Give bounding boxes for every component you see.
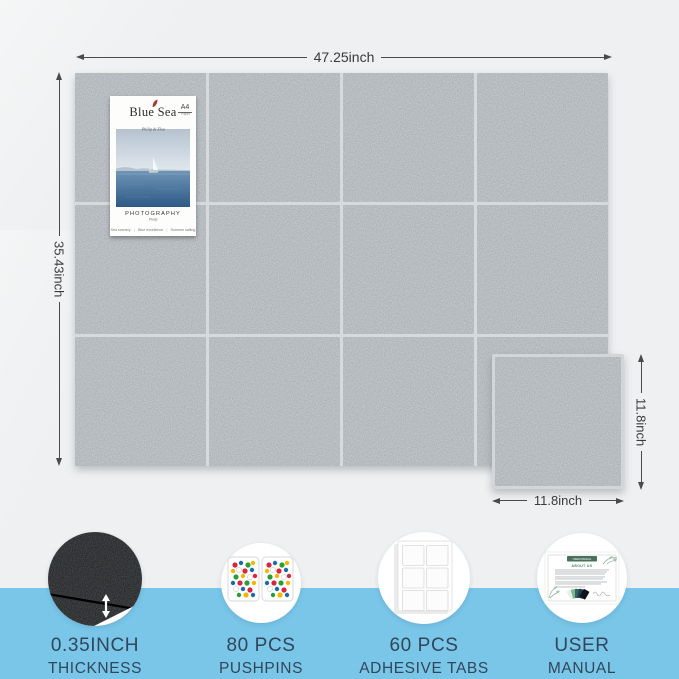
- feature-circle-pushpins: [221, 543, 301, 623]
- dimension-tile-width: 11.8inch: [492, 493, 624, 508]
- tile-width-label: 11.8inch: [534, 493, 582, 508]
- leaf-icon: [150, 99, 159, 108]
- feature-label-thickness: 0.35INCH THICKNESS: [15, 635, 175, 678]
- poster-caption: PHOTOGRAPHY: [119, 211, 188, 217]
- arrowhead-up-icon: [638, 354, 644, 362]
- poster-subtitle: Philip & Elsa: [141, 127, 164, 132]
- feature-circle-adhesive-tabs: [378, 532, 470, 624]
- dimension-board-height: 35.43inch: [50, 72, 68, 466]
- tile-height-label: 11.8inch: [634, 398, 649, 446]
- manual-pill-label: USER MANUAL: [573, 557, 592, 561]
- user-manual-icon: USER MANUAL ABOUT US: [537, 533, 627, 623]
- poster-caption-sub: Philip: [127, 218, 179, 222]
- board-width-label: 47.25inch: [314, 49, 375, 65]
- feature-label-user-manual: USER MANUAL: [502, 635, 662, 678]
- single-tile: [492, 354, 624, 489]
- sea-photo: [116, 129, 190, 207]
- arrowhead-right-icon: [604, 54, 612, 60]
- poster: Blue Sea A4 Paper Philip & Elsa: [110, 96, 196, 236]
- feature-circle-thickness: [48, 532, 142, 626]
- poster-size-badge: A4 Paper: [178, 104, 192, 119]
- pushpins-icon: [221, 543, 301, 623]
- arrowhead-left-icon: [492, 498, 500, 504]
- manual-heading: ABOUT US: [572, 564, 593, 568]
- dimension-tile-height: 11.8inch: [632, 354, 650, 490]
- adhesive-tabs-icon: [378, 532, 470, 624]
- product-infographic: 47.25inch 35.43inch: [0, 0, 679, 679]
- arrowhead-down-icon: [56, 458, 62, 466]
- dimension-board-width: 47.25inch: [76, 49, 612, 65]
- feature-circle-user-manual: USER MANUAL ABOUT US: [537, 533, 627, 623]
- board-height-label: 35.43inch: [52, 241, 67, 297]
- arrowhead-up-icon: [56, 72, 62, 80]
- poster-footer: Sea scenery | Blue excellence | Summer s…: [112, 228, 195, 232]
- feature-label-adhesive-tabs: 60 PCS ADHESIVE TABS: [344, 635, 504, 678]
- arrowhead-down-icon: [638, 482, 644, 490]
- thickness-icon: [48, 532, 142, 626]
- feature-label-pushpins: 80 PCS PUSHPINS: [181, 635, 341, 678]
- arrowhead-left-icon: [76, 54, 84, 60]
- arrowhead-right-icon: [616, 498, 624, 504]
